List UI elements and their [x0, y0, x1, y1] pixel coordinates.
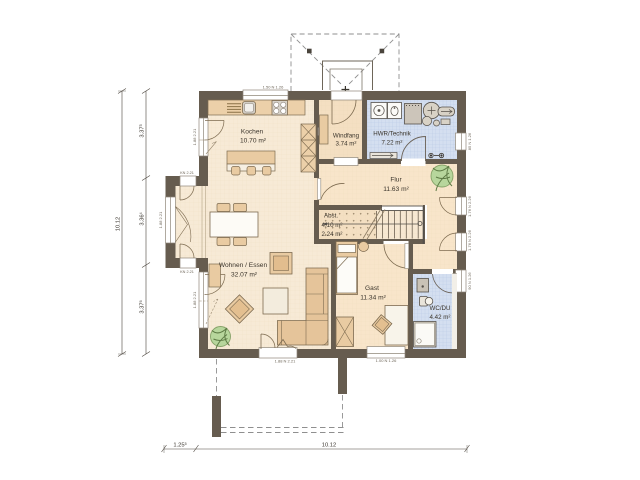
svg-text:Kochen: Kochen [241, 129, 264, 136]
svg-text:HWR/Technik: HWR/Technik [373, 131, 411, 138]
svg-text:1.88 2.21: 1.88 2.21 [192, 291, 197, 308]
svg-text:KN 2.21: KN 2.21 [180, 171, 194, 175]
svg-text:32.07 m²: 32.07 m² [231, 272, 258, 279]
svg-text:1.76 N 2.26: 1.76 N 2.26 [467, 229, 472, 250]
svg-text:1.88 2.21: 1.88 2.21 [192, 128, 197, 145]
svg-text:WC/DU: WC/DU [430, 305, 451, 312]
svg-text:Wohnen / Essen: Wohnen / Essen [219, 262, 268, 269]
svg-text:7.22 m²: 7.22 m² [382, 140, 403, 147]
svg-text:3.376: 3.376 [139, 300, 146, 313]
svg-text:KN 2.21: KN 2.21 [180, 270, 194, 274]
svg-text:Windfang: Windfang [333, 133, 360, 140]
svg-text:Abst.: Abst. [324, 213, 338, 220]
svg-text:Gast: Gast [365, 285, 379, 292]
svg-text:10.12: 10.12 [116, 217, 122, 232]
svg-text:1.00 N 1.26: 1.00 N 1.26 [376, 358, 397, 363]
svg-text:11.34 m²: 11.34 m² [360, 295, 386, 302]
svg-text:1.88 2.21: 1.88 2.21 [158, 211, 163, 228]
svg-text:2.24 m²: 2.24 m² [322, 231, 343, 238]
svg-text:11.63 m²: 11.63 m² [383, 186, 409, 193]
svg-text:3.364: 3.364 [139, 212, 146, 225]
svg-text:1.255: 1.255 [173, 442, 186, 449]
svg-text:10.12: 10.12 [322, 443, 337, 449]
svg-text:90 N 1.26: 90 N 1.26 [467, 272, 472, 290]
svg-text:Flur: Flur [390, 177, 402, 184]
svg-text:1.76 N 2.26: 1.76 N 2.26 [467, 195, 472, 216]
svg-text:10.70 m²: 10.70 m² [240, 138, 267, 145]
svg-text:1.88 N 2.21: 1.88 N 2.21 [275, 359, 296, 364]
svg-text:3.74 m²: 3.74 m² [336, 141, 357, 148]
svg-text:1.50 N 1.26: 1.50 N 1.26 [263, 85, 284, 90]
svg-text:85 N 1.26: 85 N 1.26 [467, 132, 472, 150]
svg-text:4.10 m²: 4.10 m² [322, 222, 343, 229]
svg-text:3.375: 3.375 [139, 124, 146, 137]
svg-text:4.42 m²: 4.42 m² [430, 314, 451, 321]
